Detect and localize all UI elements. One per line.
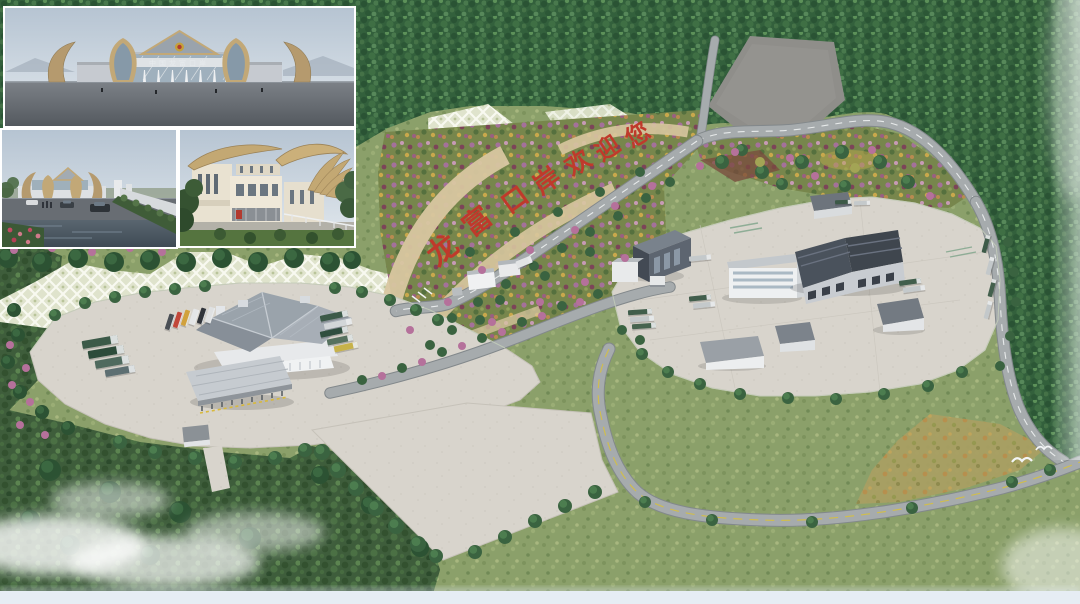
tree <box>786 154 794 162</box>
tree <box>517 317 527 327</box>
tree <box>158 248 166 256</box>
tree <box>41 431 49 439</box>
street-view-rendering <box>2 130 176 247</box>
tree <box>458 342 466 350</box>
tree <box>613 211 623 221</box>
tree <box>696 162 704 170</box>
cargo-shed-east <box>873 298 925 335</box>
tree <box>731 148 739 156</box>
tree <box>617 325 627 335</box>
front-elevation-rendering: 中国龙富口岸 <box>5 8 354 126</box>
tree <box>447 325 457 335</box>
tree <box>635 167 645 177</box>
tree <box>576 298 584 306</box>
tree <box>621 254 629 262</box>
tree <box>581 278 589 286</box>
tree <box>868 146 876 154</box>
gate-canopy <box>650 276 665 287</box>
facade-sign-text: 中国龙富口岸 <box>149 59 209 68</box>
tree <box>475 315 485 325</box>
tree <box>8 381 16 389</box>
cargo-shed-center <box>775 322 815 352</box>
tree <box>538 312 546 320</box>
inset-front-elevation: 中国龙富口岸 <box>3 6 356 128</box>
utility-building <box>182 425 210 448</box>
tree <box>495 295 505 305</box>
inset-street-view <box>0 128 178 249</box>
tree <box>465 247 475 257</box>
inset-building-closeup <box>178 128 356 248</box>
tree <box>418 358 426 366</box>
tree <box>1009 267 1019 277</box>
tree <box>585 247 595 257</box>
vehicle <box>854 201 870 207</box>
tree <box>447 313 457 323</box>
tree <box>16 421 24 429</box>
vehicle <box>835 200 851 206</box>
right-edge-haze <box>1050 0 1080 460</box>
tree <box>473 297 483 307</box>
tree <box>88 248 96 256</box>
tree <box>526 246 534 254</box>
tree <box>477 333 487 343</box>
tree <box>995 361 1005 371</box>
cargo-office-building <box>722 254 808 304</box>
tree <box>557 243 567 253</box>
tree <box>557 301 567 311</box>
tree <box>378 372 386 380</box>
tree <box>498 328 506 336</box>
tree <box>6 341 14 349</box>
tree <box>553 207 563 217</box>
tree <box>397 363 407 373</box>
tree <box>444 298 452 306</box>
red-vehicle <box>236 210 242 219</box>
tree <box>488 318 496 326</box>
tree <box>641 193 651 203</box>
tree <box>611 202 619 210</box>
tree <box>26 398 34 406</box>
tree <box>357 375 367 385</box>
tree <box>648 182 656 190</box>
tree <box>22 364 30 372</box>
tree <box>540 271 550 281</box>
tree <box>571 226 579 234</box>
tree <box>1011 297 1021 307</box>
tree <box>585 227 595 237</box>
tree <box>1003 237 1013 247</box>
tree <box>593 289 603 299</box>
tree <box>478 266 486 274</box>
tree <box>850 163 860 173</box>
tree <box>536 298 544 306</box>
tree <box>755 157 765 167</box>
tree <box>1005 331 1015 341</box>
tree <box>406 326 414 334</box>
tree <box>425 340 435 350</box>
bottom-strip-fade <box>0 588 1080 593</box>
tree <box>635 335 645 345</box>
tree <box>501 279 511 289</box>
rendering-canvas: 龙 富 口 岸 欢 迎 您 <box>0 0 1080 604</box>
cargo-shed-south <box>698 336 766 371</box>
tree <box>665 177 675 187</box>
tree <box>811 172 819 180</box>
tree <box>510 227 520 237</box>
tree <box>926 192 934 200</box>
tree <box>595 187 605 197</box>
closeup-rendering <box>180 130 354 246</box>
tree <box>437 347 447 357</box>
